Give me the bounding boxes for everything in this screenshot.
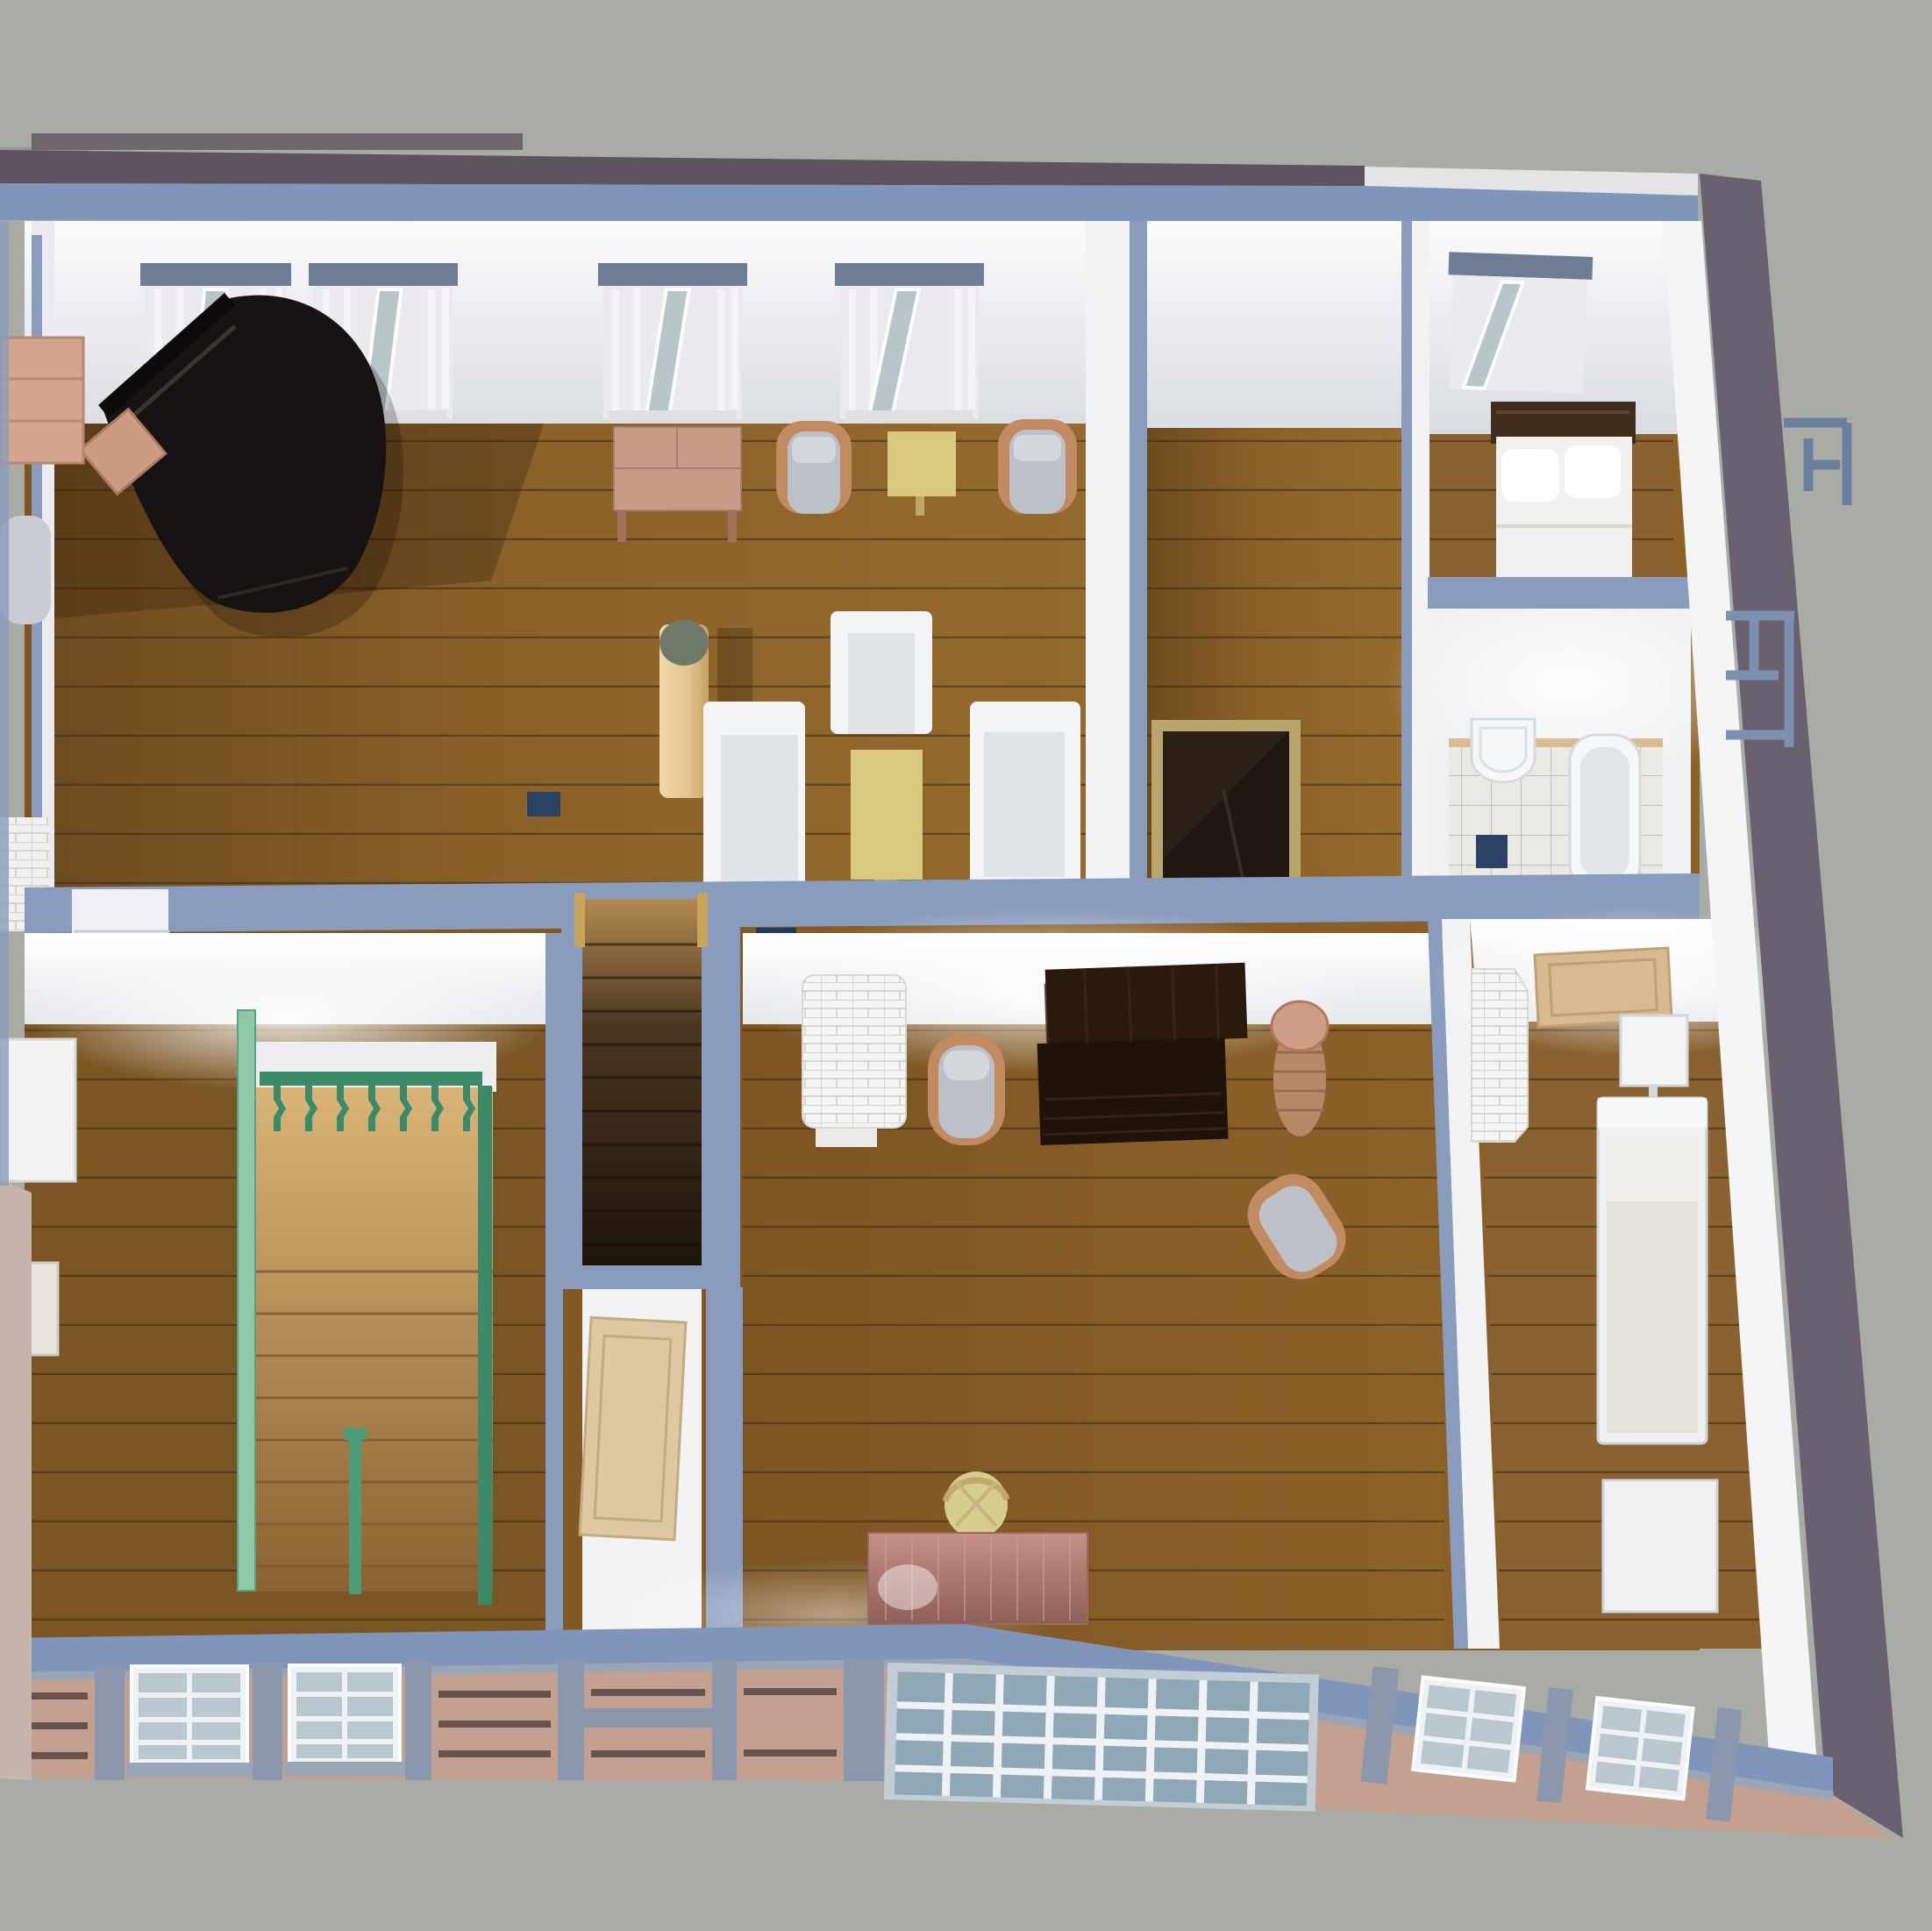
facade-window-4 (1587, 1698, 1693, 1799)
staircase (561, 887, 740, 1289)
render-viewport (0, 0, 1932, 1931)
outer-wall-top-edge (0, 183, 1698, 226)
facade-window-3 (1413, 1678, 1524, 1781)
sofa-left (703, 702, 805, 893)
window-unit-3 (598, 263, 747, 423)
facade-window-2 (284, 1665, 405, 1776)
bed-north (1491, 402, 1636, 607)
facade-big-window (884, 1663, 1319, 1812)
wall-hall-study (545, 933, 563, 1640)
window-unit-5 (1444, 252, 1593, 394)
stairwell-opening (1151, 720, 1301, 890)
gray-armchair (928, 1033, 1005, 1145)
house-cutaway-svg (0, 0, 1932, 1931)
stair-newel (574, 893, 585, 947)
sofa-right (970, 702, 1080, 889)
bathtub (1570, 735, 1640, 891)
bed-south (1598, 1098, 1707, 1443)
armchair-window-left (776, 421, 852, 514)
tiled-stove-study (802, 975, 906, 1147)
coffee-table (851, 750, 923, 892)
alcove-dresser (0, 338, 83, 463)
wall-dining-bedroom (1401, 221, 1429, 886)
chimney-block-a (527, 792, 560, 816)
left-wall-edge (0, 221, 9, 1186)
facade-mid-rail (584, 1708, 717, 1728)
writing-desk (868, 1533, 1087, 1624)
secretary-desk (1035, 963, 1251, 1145)
wall-bedroom-bathroom (1428, 577, 1698, 609)
left-exterior-corner (0, 1179, 32, 1780)
serving-trolley (1272, 1001, 1328, 1137)
roof-back-strip (32, 133, 523, 150)
wall-living-dining (1086, 221, 1147, 890)
pillow (1565, 445, 1621, 498)
desk-chair (945, 1471, 1008, 1538)
chimney-block-b (1476, 835, 1508, 868)
chest (1603, 1480, 1717, 1612)
stair-newel (697, 893, 708, 947)
sink (1472, 719, 1535, 782)
tiled-stove-corner (1472, 969, 1528, 1142)
armchair-window-right (998, 419, 1077, 514)
facade-window-1 (126, 1666, 253, 1777)
pillow (1607, 1140, 1698, 1201)
armchair-white (831, 611, 932, 734)
window-unit-4 (835, 263, 984, 423)
pillow (1501, 449, 1559, 502)
hall-cabinet-upper (0, 1039, 75, 1181)
